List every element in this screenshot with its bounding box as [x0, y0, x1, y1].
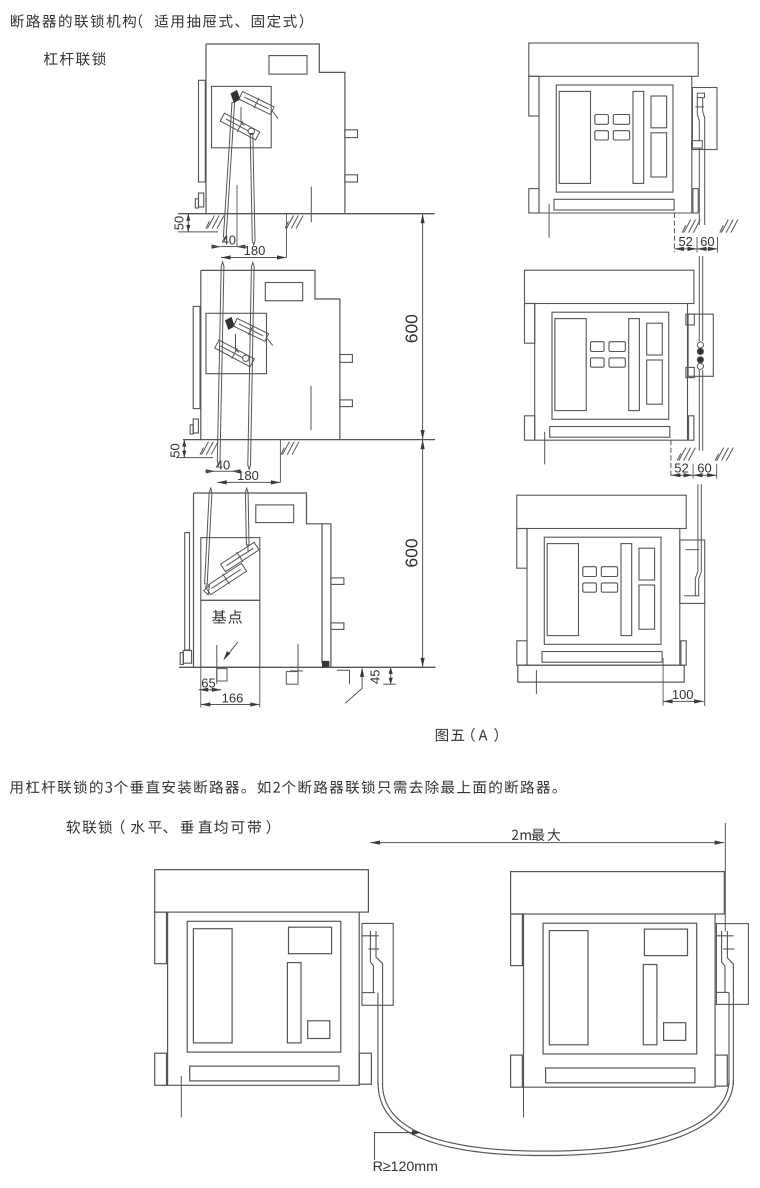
svg-text:100: 100 [672, 687, 694, 702]
svg-text:60: 60 [700, 234, 714, 249]
svg-text:166: 166 [222, 691, 244, 706]
svg-text:180: 180 [237, 468, 259, 483]
svg-text:52: 52 [674, 460, 688, 475]
svg-text:40: 40 [222, 233, 236, 248]
svg-text:50: 50 [168, 443, 183, 457]
svg-text:50: 50 [172, 216, 187, 230]
svg-text:R≥120mm: R≥120mm [373, 1159, 438, 1175]
svg-text:45: 45 [368, 670, 383, 684]
svg-text:40: 40 [216, 458, 230, 473]
svg-text:52: 52 [678, 234, 692, 249]
svg-text:600: 600 [402, 538, 422, 567]
svg-text:600: 600 [401, 314, 421, 343]
svg-text:180: 180 [244, 243, 266, 258]
svg-text:60: 60 [697, 460, 711, 475]
svg-text:65: 65 [201, 676, 215, 691]
